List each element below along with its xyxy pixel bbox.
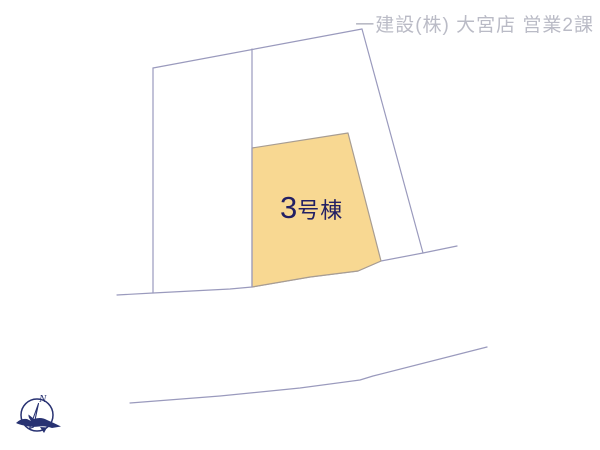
compass-north-label: N	[38, 393, 47, 405]
plot-number: 3	[280, 192, 297, 223]
road-far-edge-line	[130, 347, 487, 403]
plot-suffix: 号棟	[297, 200, 343, 222]
boundary-top-line	[153, 29, 362, 68]
plot-3-label: 3号棟	[280, 192, 343, 223]
company-header: 一建設(株) 大宮店 営業2課	[355, 10, 594, 37]
boundary-right-line	[362, 29, 423, 253]
parcel-map	[0, 0, 600, 450]
compass-icon: N	[14, 391, 62, 439]
plot-layout-viewer: 一建設(株) 大宮店 営業2課 3号棟 N	[0, 0, 600, 450]
